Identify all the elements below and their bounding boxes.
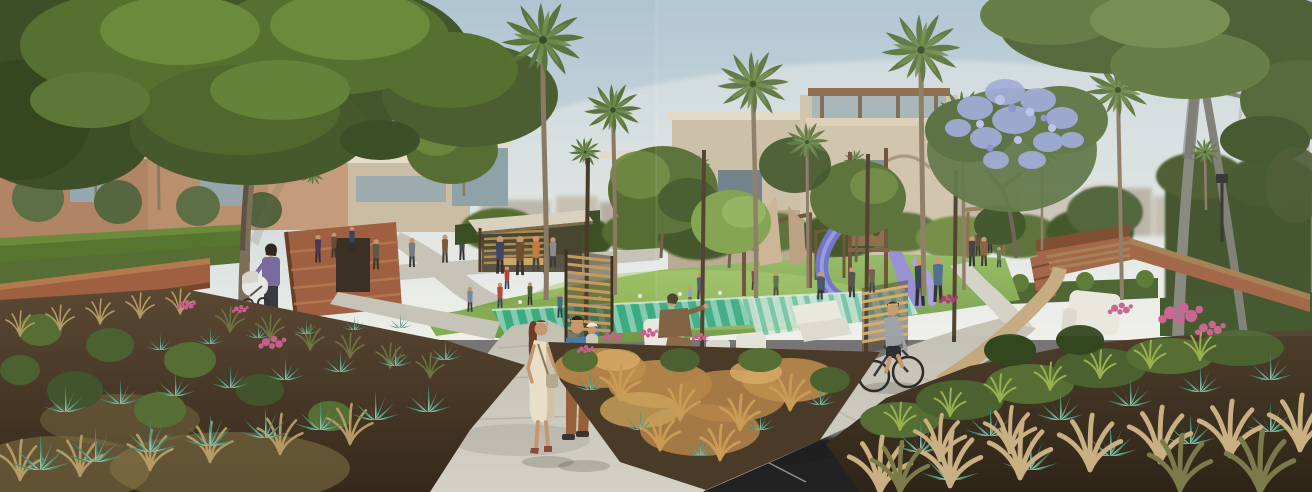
park-render: Sunlit architectural rendering of a land… [0, 0, 1312, 492]
park-render-svg [0, 0, 1312, 492]
panorama-seam [656, 0, 1312, 340]
